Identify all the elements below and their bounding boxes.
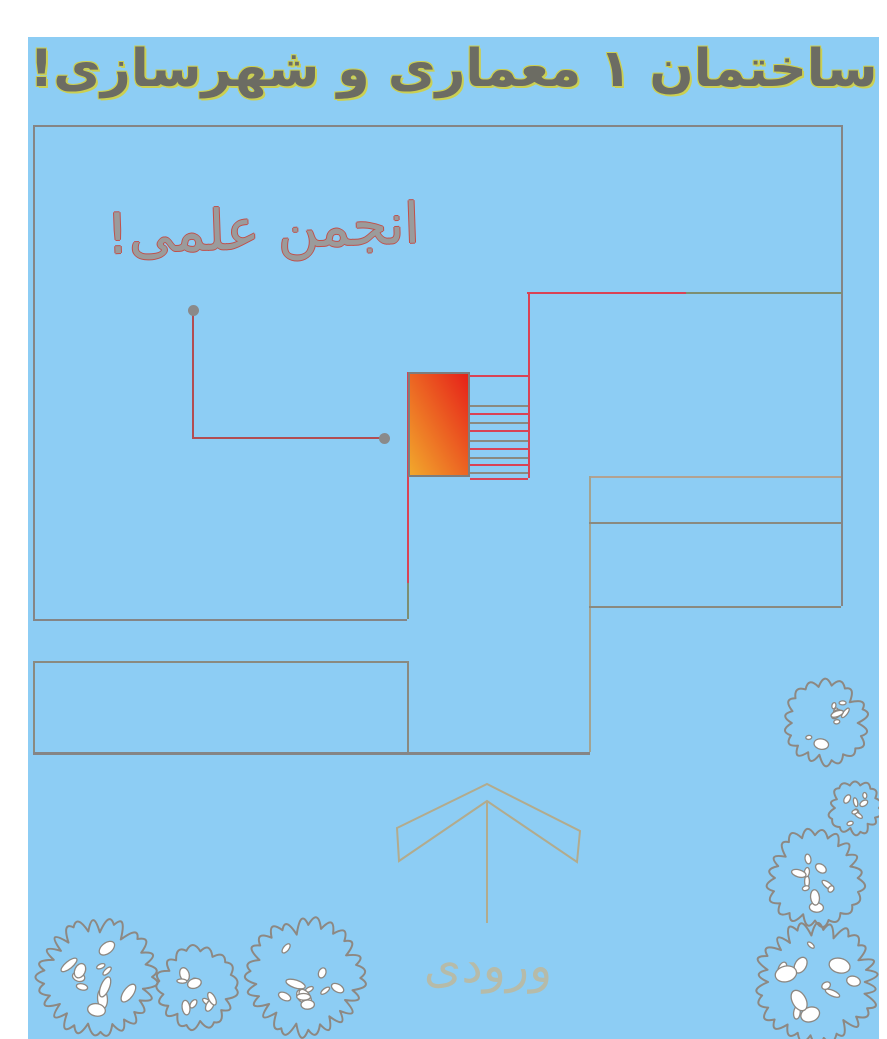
map-canvas: ساختمان ۱ معماری و شهرسازی! انجمن علمی! … <box>28 37 879 1039</box>
tree-blob <box>853 797 859 807</box>
tree-blob <box>177 979 187 984</box>
tree-blob <box>317 967 328 979</box>
tree-blob <box>806 735 813 740</box>
tree-blob <box>824 988 840 999</box>
tree-icon <box>785 679 868 767</box>
entrance-arrow-icon <box>397 784 580 862</box>
tree-blob <box>277 990 292 1002</box>
tree-blob <box>846 975 862 988</box>
site-plan-page: ساختمان ۱ معماری و شهرسازی! انجمن علمی! … <box>0 0 887 1039</box>
tree-blob <box>97 939 117 958</box>
tree-blob <box>297 993 311 1000</box>
tree-blob <box>301 1000 315 1010</box>
tree-blob <box>804 854 812 865</box>
tree-blob <box>96 963 106 970</box>
tree-blob <box>839 701 846 705</box>
tree-blob <box>330 981 346 994</box>
tree-blob <box>181 1000 191 1016</box>
tree-blob <box>320 986 331 996</box>
vector-layer <box>28 37 879 1039</box>
tree-blob <box>285 977 306 991</box>
tree-blob <box>859 799 869 808</box>
tree-blob <box>118 982 138 1005</box>
tree-icon <box>245 917 366 1038</box>
tree-icon <box>35 919 157 1036</box>
tree-blob <box>76 983 89 992</box>
tree-blob <box>846 820 853 826</box>
tree-blob <box>813 738 829 751</box>
tree-blob <box>814 862 828 875</box>
tree-blob <box>802 885 810 891</box>
tree-blob <box>842 794 852 805</box>
entrance-label: ورودی <box>378 938 598 994</box>
tree-icon <box>829 782 879 836</box>
tree-blob <box>833 719 840 724</box>
tree-blob <box>806 941 815 949</box>
tree-blob <box>97 975 113 998</box>
tree-blob <box>862 792 867 798</box>
tree-blob <box>828 956 852 975</box>
tree-blob <box>281 942 292 954</box>
